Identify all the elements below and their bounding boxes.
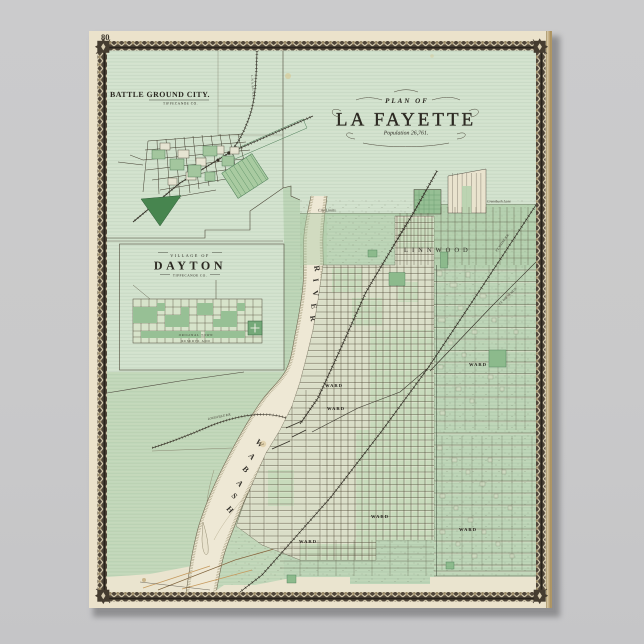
svg-text:PLAN OF: PLAN OF bbox=[385, 97, 429, 105]
svg-text:City Limits: City Limits bbox=[318, 208, 336, 213]
svg-text:ORIGINAL TOWN: ORIGINAL TOWN bbox=[179, 333, 213, 337]
svg-text:WARD: WARD bbox=[469, 362, 487, 367]
svg-text:TIPPECANOE CO.: TIPPECANOE CO. bbox=[173, 274, 207, 278]
svg-text:TIPPECANOE CO.: TIPPECANOE CO. bbox=[163, 102, 198, 106]
svg-text:DAYTON: DAYTON bbox=[154, 259, 226, 273]
svg-text:WARD: WARD bbox=[371, 514, 389, 519]
svg-text:LINNWOOD: LINNWOOD bbox=[404, 247, 472, 254]
svg-text:LA FAYETTE: LA FAYETTE bbox=[336, 110, 476, 131]
svg-text:WARD: WARD bbox=[459, 527, 477, 532]
svg-text:RESERVE ADD: RESERVE ADD bbox=[182, 339, 211, 343]
svg-text:VILLAGE OF: VILLAGE OF bbox=[170, 253, 210, 258]
svg-text:Greenbush Lane: Greenbush Lane bbox=[487, 200, 511, 204]
svg-text:WARD: WARD bbox=[299, 539, 317, 544]
svg-text:WARD: WARD bbox=[325, 383, 343, 388]
svg-text:Population 26,761.: Population 26,761. bbox=[383, 130, 429, 137]
svg-text:BATTLE GROUND CITY.: BATTLE GROUND CITY. bbox=[110, 90, 210, 99]
svg-text:WARD: WARD bbox=[327, 406, 345, 411]
